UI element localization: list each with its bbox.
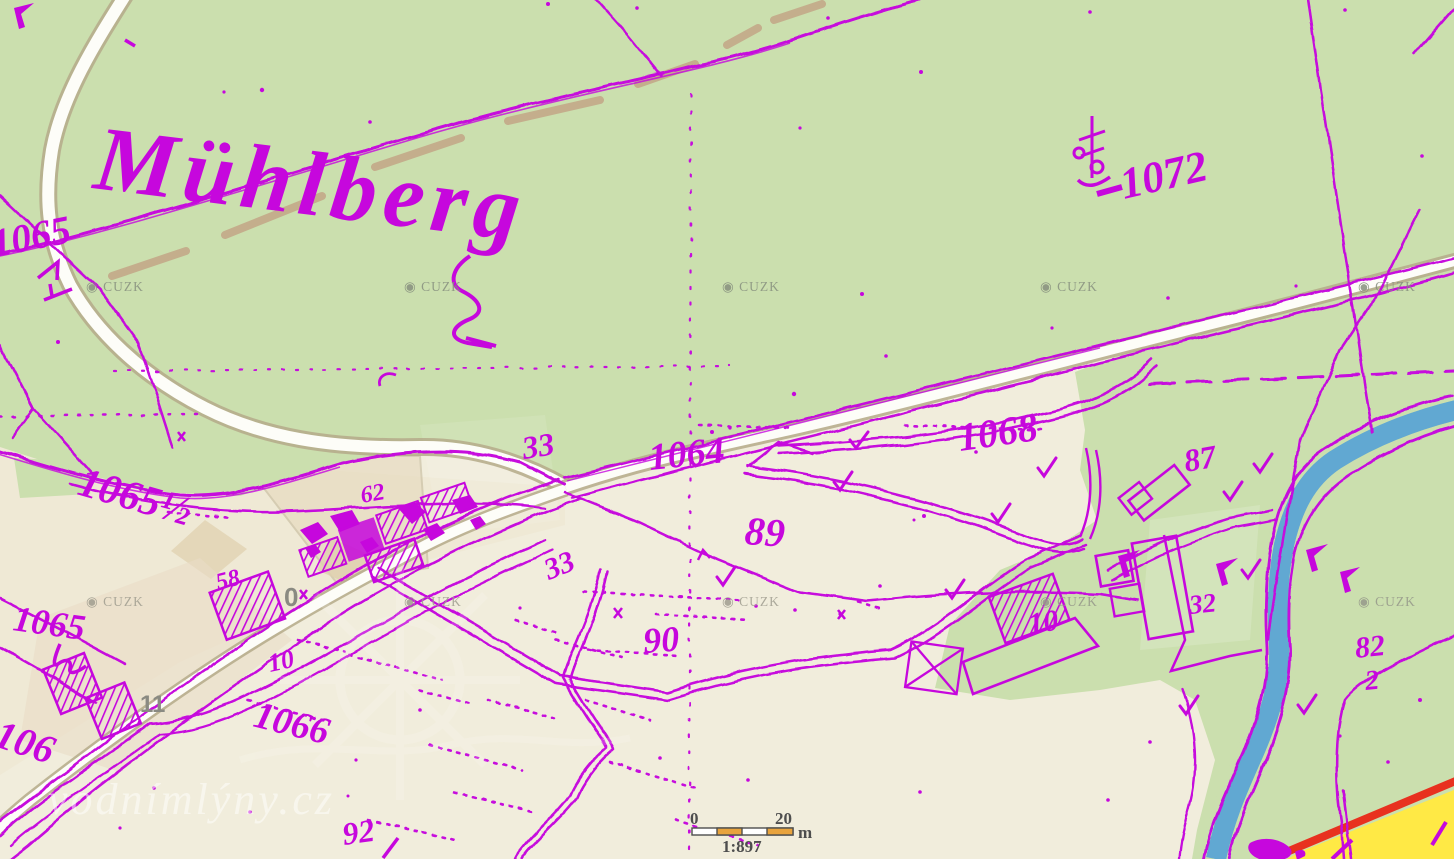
svg-text:vodnímlýny.cz: vodnímlýny.cz xyxy=(48,775,335,824)
svg-text:◉ CUZK: ◉ CUZK xyxy=(86,594,144,609)
svg-text:◉ CUZK: ◉ CUZK xyxy=(1358,594,1416,609)
svg-text:◉ CUZK: ◉ CUZK xyxy=(86,279,144,294)
svg-text:92: 92 xyxy=(340,812,377,852)
svg-text:32: 32 xyxy=(1186,587,1217,620)
svg-text:20: 20 xyxy=(775,809,792,828)
svg-text:◉ CUZK: ◉ CUZK xyxy=(404,594,462,609)
svg-text:62: 62 xyxy=(359,479,387,509)
svg-text:0: 0 xyxy=(284,582,298,612)
svg-text:m: m xyxy=(798,823,812,842)
svg-text:◉ CUZK: ◉ CUZK xyxy=(1040,279,1098,294)
svg-text:89: 89 xyxy=(743,508,786,556)
svg-text:◉ CUZK: ◉ CUZK xyxy=(722,594,780,609)
svg-text:1:897: 1:897 xyxy=(722,837,762,856)
svg-text:◉ CUZK: ◉ CUZK xyxy=(1040,594,1098,609)
svg-text:1064: 1064 xyxy=(647,429,727,479)
svg-text:◉ CUZK: ◉ CUZK xyxy=(1358,279,1416,294)
svg-text:◉ CUZK: ◉ CUZK xyxy=(722,279,780,294)
svg-text:82: 82 xyxy=(1353,629,1386,665)
svg-text:◉ CUZK: ◉ CUZK xyxy=(404,279,462,294)
svg-text:0: 0 xyxy=(690,809,699,828)
svg-text:11: 11 xyxy=(140,691,165,718)
svg-text:10: 10 xyxy=(1026,604,1061,641)
svg-text:33: 33 xyxy=(518,425,556,466)
